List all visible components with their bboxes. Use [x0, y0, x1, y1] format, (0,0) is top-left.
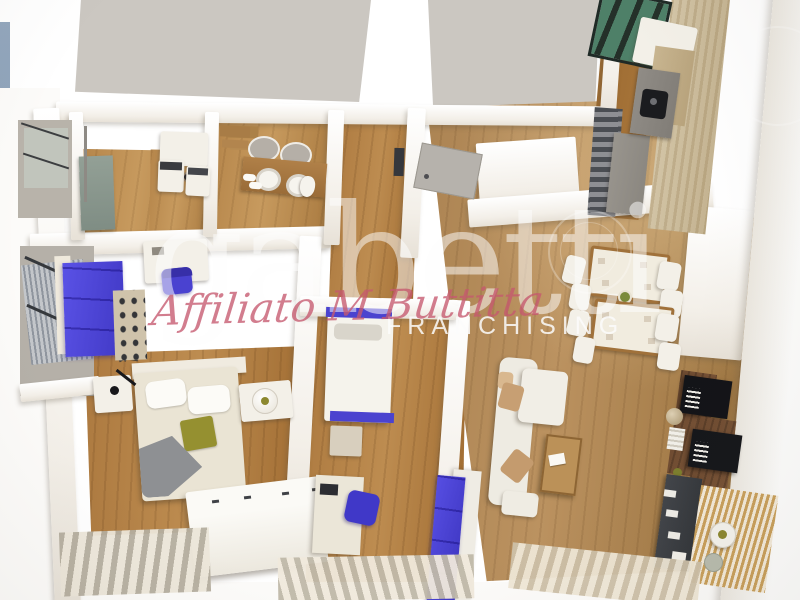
nightstand-single [329, 425, 362, 456]
cooktop-knob [650, 98, 657, 105]
single-chair-blue [343, 489, 381, 527]
bathroom-shelf-1 [220, 125, 251, 138]
floor-lamp-pole [84, 126, 87, 202]
lamp-black [110, 386, 119, 395]
roof-panel-left [75, 0, 371, 102]
floor-plan-render: gabetti FRANCHISING Affiliato M Buttitta [0, 0, 800, 600]
chair-t2-right-2 [656, 342, 682, 372]
rug-bedroom-double [59, 527, 211, 596]
book-stack-white [667, 427, 686, 451]
console-books-3 [668, 531, 681, 540]
curtain-strip-center [278, 554, 475, 600]
roof-panel-right [428, 0, 600, 112]
locker-unit [113, 289, 147, 360]
plant-pot-small [704, 553, 723, 572]
plant-pot-white-center [718, 530, 727, 539]
bathroom-shelf-2 [222, 139, 248, 148]
watermark-seal-top-right [728, 26, 800, 126]
console-books-2 [666, 509, 679, 518]
wall-radiator [394, 148, 405, 176]
decor-sphere [666, 408, 683, 425]
pillow-left [144, 377, 187, 409]
sofa-chaise [517, 368, 568, 427]
pillow-right [187, 384, 231, 415]
coffee-table [540, 434, 583, 496]
washing-machine-1-top [160, 162, 182, 171]
console-books-1 [664, 489, 677, 498]
single-desk-monitor [320, 484, 339, 496]
books-white-2 [693, 441, 710, 463]
cushion-olive [180, 415, 218, 451]
books-white-1 [685, 387, 702, 409]
lamp-round-center [261, 397, 269, 405]
sofa-foot-section [501, 490, 539, 518]
